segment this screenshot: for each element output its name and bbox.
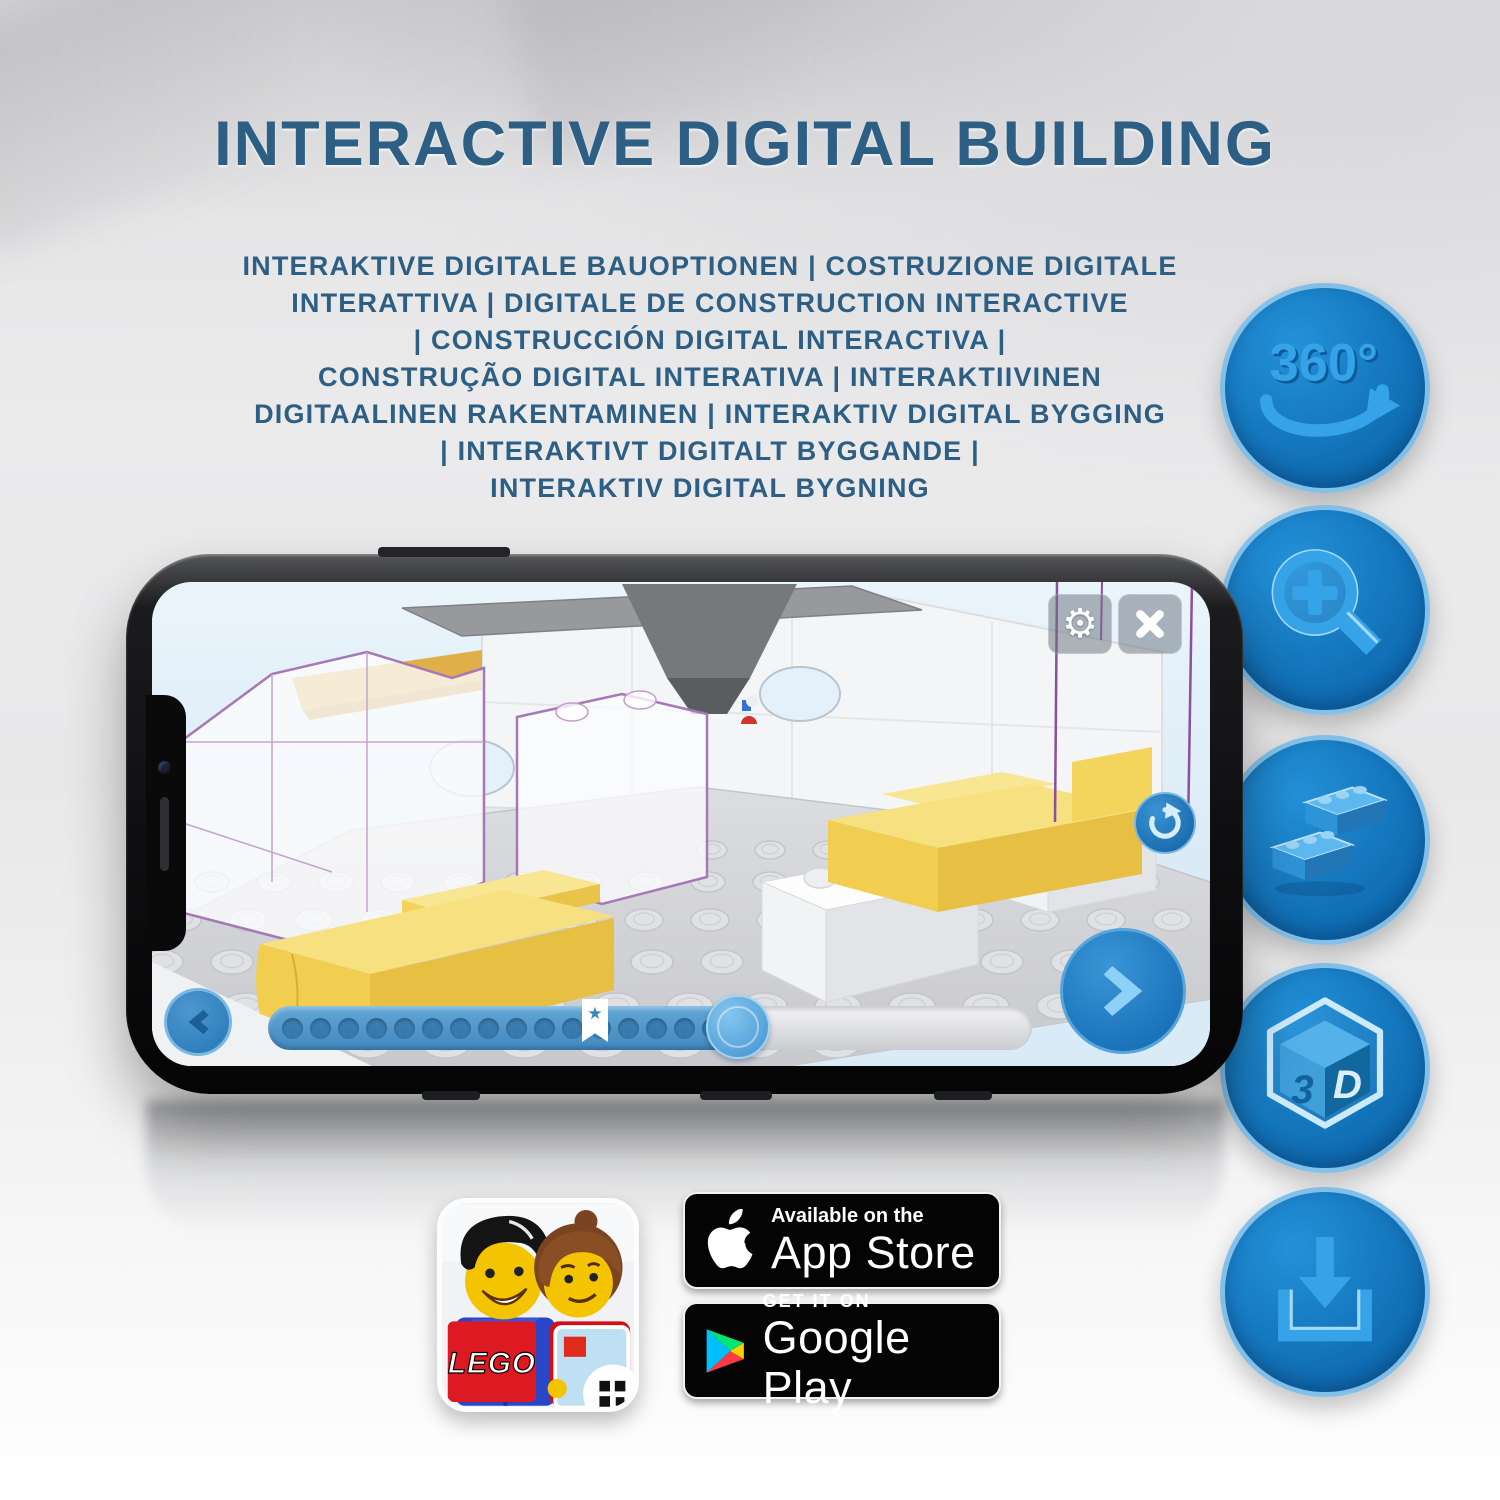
previous-step-button[interactable] — [164, 988, 232, 1056]
app-store-name: App Store — [771, 1228, 976, 1278]
feature-download — [1220, 1187, 1430, 1397]
app-store-badge[interactable]: Available on the App Store — [683, 1192, 1001, 1289]
subtitle-line: CONSTRUÇÃO DIGITAL INTERATIVA | INTERAKT… — [160, 359, 1260, 396]
progress-dot — [478, 1018, 499, 1039]
progress-dot — [674, 1018, 695, 1039]
progress-dot — [422, 1018, 443, 1039]
google-play-icon — [703, 1323, 747, 1379]
close-button[interactable] — [1118, 594, 1182, 654]
phone-edge-slot — [934, 1091, 992, 1100]
chevron-right-icon — [1078, 946, 1168, 1036]
gear-icon: ⚙ — [1062, 604, 1098, 644]
svg-text:D: D — [1333, 1063, 1362, 1107]
progress-track-filled[interactable] — [268, 1006, 746, 1050]
subtitle-line: DIGITAALINEN RAKENTAMINEN | INTERAKTIV D… — [160, 396, 1260, 433]
phone-mockup: ⚙ — [126, 554, 1243, 1094]
app-screen: ⚙ — [152, 582, 1210, 1066]
subtitle-line: INTERAKTIVE DIGITALE BAUOPTIONEN | COSTR… — [160, 248, 1260, 285]
progress-dot — [646, 1018, 667, 1039]
lego-3d-scene — [152, 582, 1210, 1066]
subtitle-line: INTERATTIVA | DIGITALE DE CONSTRUCTION I… — [160, 285, 1260, 322]
feature-digital-bricks — [1220, 735, 1430, 945]
settings-button[interactable]: ⚙ — [1048, 594, 1112, 654]
progress-dot — [310, 1018, 331, 1039]
earpiece-speaker — [160, 797, 169, 871]
progress-dot — [506, 1018, 527, 1039]
subtitle-line: | CONSTRUCCIÓN DIGITAL INTERACTIVA | — [160, 322, 1260, 359]
progress-dot — [450, 1018, 471, 1039]
svg-text:360°: 360° — [1269, 334, 1378, 393]
phone-edge-slot — [700, 1091, 772, 1100]
rotate-view-button[interactable] — [1134, 792, 1196, 854]
lego-bricks-icon — [1250, 765, 1400, 915]
apple-logo-icon — [703, 1209, 755, 1273]
subtitle-line: | INTERAKTIVT DIGITALT BYGGANDE | — [160, 433, 1260, 470]
front-camera — [158, 761, 171, 774]
app-store-tagline: Available on the — [771, 1204, 976, 1228]
rotate-360-icon: 360° 360° — [1250, 313, 1400, 463]
lego-app-icon[interactable]: LEGO — [437, 1198, 639, 1412]
feature-3d-view: 3 D — [1220, 963, 1430, 1173]
progress-dot — [618, 1018, 639, 1039]
progress-dot — [562, 1018, 583, 1039]
subtitle-block: INTERAKTIVE DIGITALE BAUOPTIONEN | COSTR… — [160, 248, 1260, 507]
rotate-clockwise-icon — [1143, 801, 1187, 845]
progress-dot — [534, 1018, 555, 1039]
magnifier-plus-icon — [1250, 535, 1400, 685]
progress-dot — [394, 1018, 415, 1039]
google-play-name: Google Play — [763, 1313, 981, 1413]
phone-notch — [146, 695, 186, 951]
phone-side-button — [378, 547, 510, 557]
google-play-badge[interactable]: GET IT ON Google Play — [683, 1302, 1001, 1399]
lego-wordmark: LEGO — [448, 1347, 536, 1380]
page-title: INTERACTIVE DIGITAL BUILDING — [0, 108, 1490, 180]
phone-edge-slot — [422, 1091, 480, 1100]
next-step-button[interactable] — [1060, 928, 1186, 1054]
3d-cube-icon: 3 D — [1250, 993, 1400, 1143]
subtitle-line: INTERAKTIV DIGITAL BYGNING — [160, 470, 1260, 507]
feature-360-rotation: 360° 360° — [1220, 283, 1430, 493]
close-icon — [1130, 604, 1170, 644]
progress-track-remaining[interactable] — [746, 1006, 1032, 1050]
download-icon — [1250, 1217, 1400, 1367]
progress-dot — [338, 1018, 359, 1039]
chevron-left-icon — [175, 999, 221, 1045]
poster: INTERACTIVE DIGITAL BUILDING INTERAKTIVE… — [0, 0, 1500, 1500]
feature-zoom — [1220, 505, 1430, 715]
google-play-tagline: GET IT ON — [763, 1289, 981, 1313]
progress-thumb[interactable] — [706, 995, 770, 1059]
svg-text:3: 3 — [1291, 1068, 1313, 1112]
lego-app-icon-art: LEGO — [442, 1203, 634, 1407]
progress-dot — [366, 1018, 387, 1039]
progress-dot — [282, 1018, 303, 1039]
